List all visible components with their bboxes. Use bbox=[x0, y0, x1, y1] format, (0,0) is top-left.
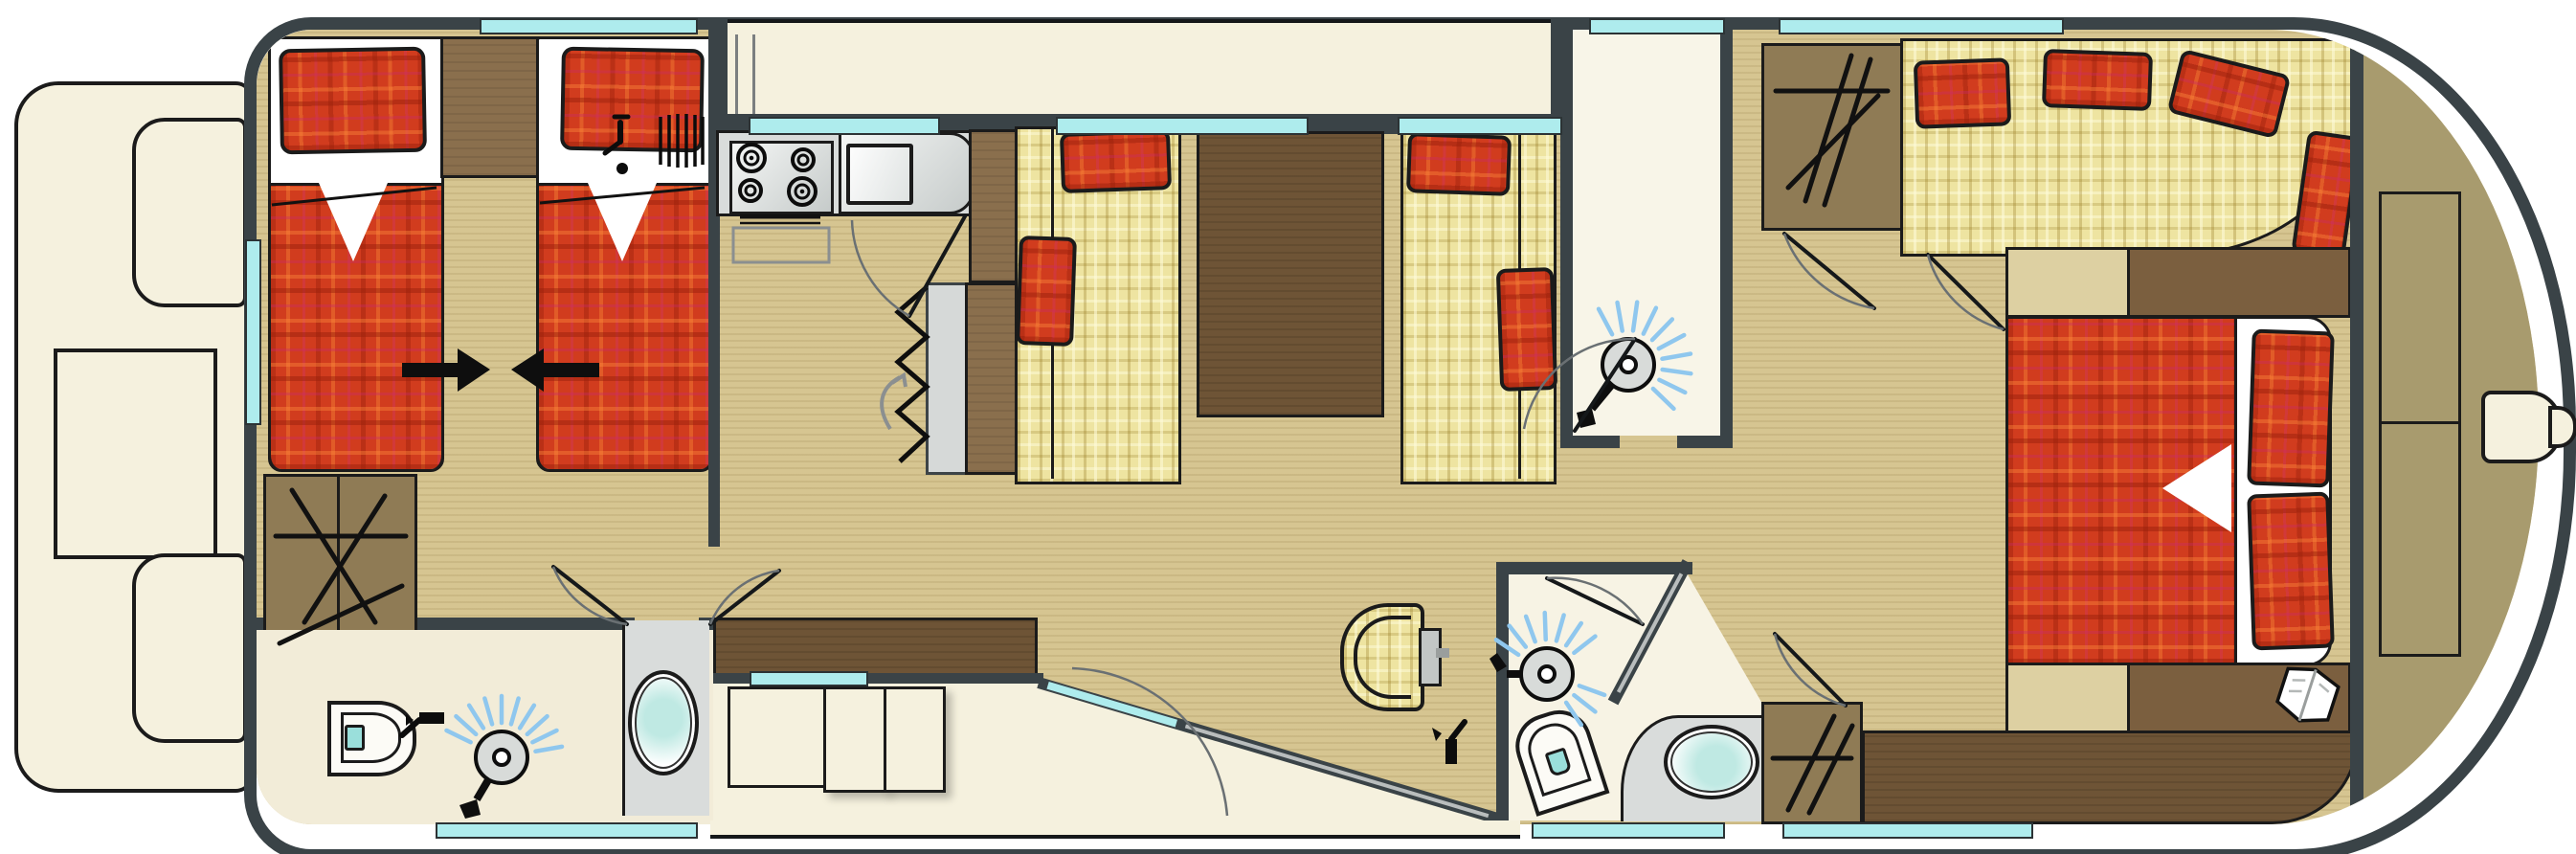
window bbox=[749, 117, 940, 135]
side-walkway bbox=[713, 30, 1565, 117]
shower-room-wall bbox=[1720, 30, 1733, 448]
window bbox=[1779, 18, 2064, 34]
deck-locker bbox=[2379, 191, 2461, 427]
gunwale-bottom bbox=[710, 820, 1520, 839]
cushion bbox=[1406, 132, 1512, 196]
stern-deck-wall bbox=[2350, 38, 2363, 816]
cushion bbox=[1914, 57, 2011, 128]
pillow bbox=[560, 47, 705, 153]
window bbox=[1398, 117, 1562, 135]
walkway-step-line bbox=[735, 30, 738, 117]
cushion bbox=[2042, 49, 2153, 111]
nightstand-top bbox=[2127, 247, 2351, 318]
wardrobe-mid bbox=[1761, 43, 1906, 231]
bed-foot-bench-bottom bbox=[2005, 663, 2133, 736]
aft-dresser bbox=[1862, 730, 2359, 824]
aft-bathroom-wall bbox=[1496, 562, 1509, 820]
deck-locker bbox=[2379, 421, 2461, 657]
kitchen-sink-basin bbox=[846, 144, 913, 205]
bow-bench-front bbox=[132, 118, 247, 307]
sheet-fold bbox=[319, 183, 388, 261]
fridge-cabinet bbox=[969, 129, 1020, 283]
wardrobe-aft bbox=[1761, 702, 1863, 824]
shower-room-floor bbox=[1573, 30, 1720, 436]
window bbox=[750, 671, 868, 686]
window bbox=[245, 239, 261, 425]
pillow bbox=[2247, 329, 2335, 488]
toilet-tank-mark bbox=[345, 725, 365, 751]
cockpit-step bbox=[884, 686, 946, 793]
sheet-fold bbox=[2162, 444, 2231, 532]
gunwale-top bbox=[728, 19, 1551, 34]
window bbox=[1589, 18, 1725, 34]
helm-console-arm bbox=[1436, 648, 1449, 658]
cushion bbox=[1016, 236, 1077, 347]
pillow bbox=[2247, 492, 2335, 651]
stove bbox=[729, 141, 834, 214]
bow-locker bbox=[54, 348, 217, 559]
washbasin bbox=[628, 670, 699, 775]
bed-foot-bench-top bbox=[2005, 247, 2133, 318]
swim-step-pod-tip bbox=[2548, 406, 2576, 448]
sheet-fold bbox=[588, 183, 657, 261]
cockpit-platform bbox=[728, 686, 827, 788]
shower-room-wall bbox=[1560, 30, 1573, 448]
hull-interior bbox=[257, 30, 2539, 824]
cushion bbox=[1060, 129, 1172, 193]
stairs-cabinet bbox=[965, 282, 1020, 475]
sideboard bbox=[713, 618, 1038, 679]
window bbox=[1056, 117, 1309, 135]
cockpit-step bbox=[823, 686, 886, 793]
aft-washbasin bbox=[1664, 725, 1759, 799]
nightstand bbox=[440, 36, 542, 178]
cushion bbox=[1496, 267, 1557, 392]
window bbox=[480, 18, 698, 34]
window bbox=[436, 822, 698, 839]
shower-room-wall bbox=[1677, 436, 1733, 448]
cabin-galley-wall bbox=[708, 30, 720, 547]
companionway-stairs bbox=[926, 282, 970, 475]
bow-bench-rear bbox=[132, 553, 247, 743]
pillow bbox=[279, 47, 427, 155]
window bbox=[1532, 822, 1725, 839]
nightstand-bottom bbox=[2127, 663, 2351, 736]
floor-plan bbox=[0, 0, 2576, 854]
window bbox=[1782, 822, 2033, 839]
dining-table bbox=[1197, 131, 1384, 417]
walkway-step-line bbox=[752, 30, 755, 117]
shower-room-wall bbox=[1560, 436, 1620, 448]
aft-bathroom-wall bbox=[1496, 562, 1692, 574]
